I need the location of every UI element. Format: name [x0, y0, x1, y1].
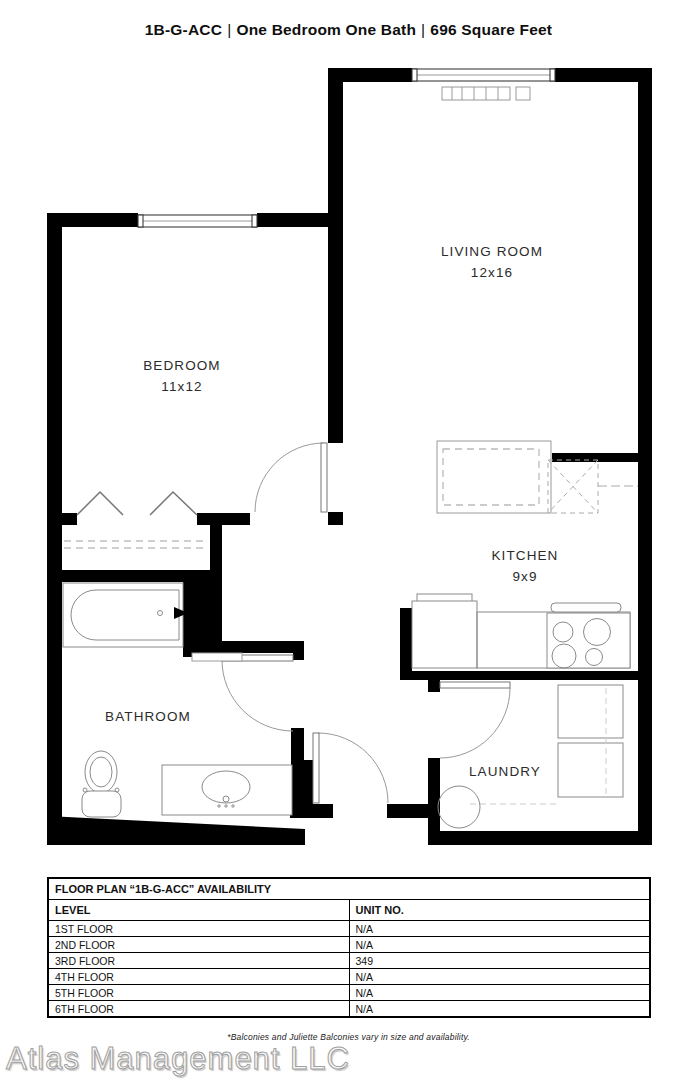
column-header-unit: UNIT NO. [349, 900, 650, 921]
living-room-dimensions: 12x16 [441, 262, 543, 283]
table-row: 1ST FLOOR N/A [48, 921, 650, 937]
level-cell: 2ND FLOOR [48, 937, 349, 953]
bedroom-window [138, 215, 257, 227]
bathroom-shelf [192, 653, 242, 661]
water-heater-icon [438, 786, 480, 828]
level-cell: 4TH FLOOR [48, 969, 349, 985]
room-label-living-room: LIVING ROOM 12x16 [441, 241, 543, 283]
availability-table: FLOOR PLAN “1B-G-ACC” AVAILABILITY LEVEL… [47, 877, 651, 1018]
room-label-bathroom: BATHROOM [105, 706, 191, 727]
unit-cell: 349 [349, 953, 650, 969]
table-row: 3RD FLOOR 349 [48, 953, 650, 969]
laundry-door [440, 682, 510, 758]
bathroom-door [222, 655, 293, 731]
level-cell: 3RD FLOOR [48, 953, 349, 969]
availability-table-header-row: LEVEL UNIT NO. [48, 900, 650, 921]
room-label-bedroom: BEDROOM 11x12 [143, 355, 220, 397]
kitchen-island-counter [437, 441, 551, 513]
entry-door [313, 733, 388, 803]
bathroom-name: BATHROOM [105, 706, 191, 727]
availability-table-title: FLOOR PLAN “1B-G-ACC” AVAILABILITY [48, 878, 650, 900]
floor-plan-page: 1B-G-ACC|One Bedroom One Bath|696 Square… [0, 0, 697, 1080]
living-room-name: LIVING ROOM [441, 241, 543, 262]
unit-cell: N/A [349, 969, 650, 985]
room-label-laundry: LAUNDRY [469, 761, 541, 782]
toilet-icon [82, 751, 121, 817]
unit-cell: N/A [349, 921, 650, 937]
room-label-kitchen: KITCHEN 9x9 [492, 545, 559, 587]
range-stove-icon [547, 603, 630, 668]
upper-cabinet-icon [548, 460, 638, 513]
closet-bifold-doors-icon [77, 492, 197, 515]
bedroom-name: BEDROOM [143, 355, 220, 376]
walls [47, 68, 652, 845]
laundry-name: LAUNDRY [469, 761, 541, 782]
table-row: 5TH FLOOR N/A [48, 985, 650, 1001]
table-row: 6TH FLOOR N/A [48, 1001, 650, 1018]
level-cell: 6TH FLOOR [48, 1001, 349, 1018]
table-row: 2ND FLOOR N/A [48, 937, 650, 953]
availability-table-title-row: FLOOR PLAN “1B-G-ACC” AVAILABILITY [48, 878, 650, 900]
bedroom-door [255, 443, 327, 512]
unit-cell: N/A [349, 985, 650, 1001]
kitchen-name: KITCHEN [492, 545, 559, 566]
closet-rod-shelf [64, 541, 208, 548]
vanity-sink-icon [162, 765, 292, 815]
baseboard-heater-icon [442, 87, 530, 100]
company-watermark: Atlas Management LLC [6, 1041, 350, 1077]
level-cell: 1ST FLOOR [48, 921, 349, 937]
table-row: 4TH FLOOR N/A [48, 969, 650, 985]
washer-dryer-icon [470, 685, 623, 804]
living-room-window [412, 69, 555, 81]
level-cell: 5TH FLOOR [48, 985, 349, 1001]
unit-cell: N/A [349, 937, 650, 953]
kitchen-dimensions: 9x9 [492, 566, 559, 587]
column-header-level: LEVEL [48, 900, 349, 921]
unit-cell: N/A [349, 1001, 650, 1018]
bathtub-icon [63, 583, 188, 647]
refrigerator-icon [412, 594, 477, 668]
bedroom-dimensions: 11x12 [143, 376, 220, 397]
